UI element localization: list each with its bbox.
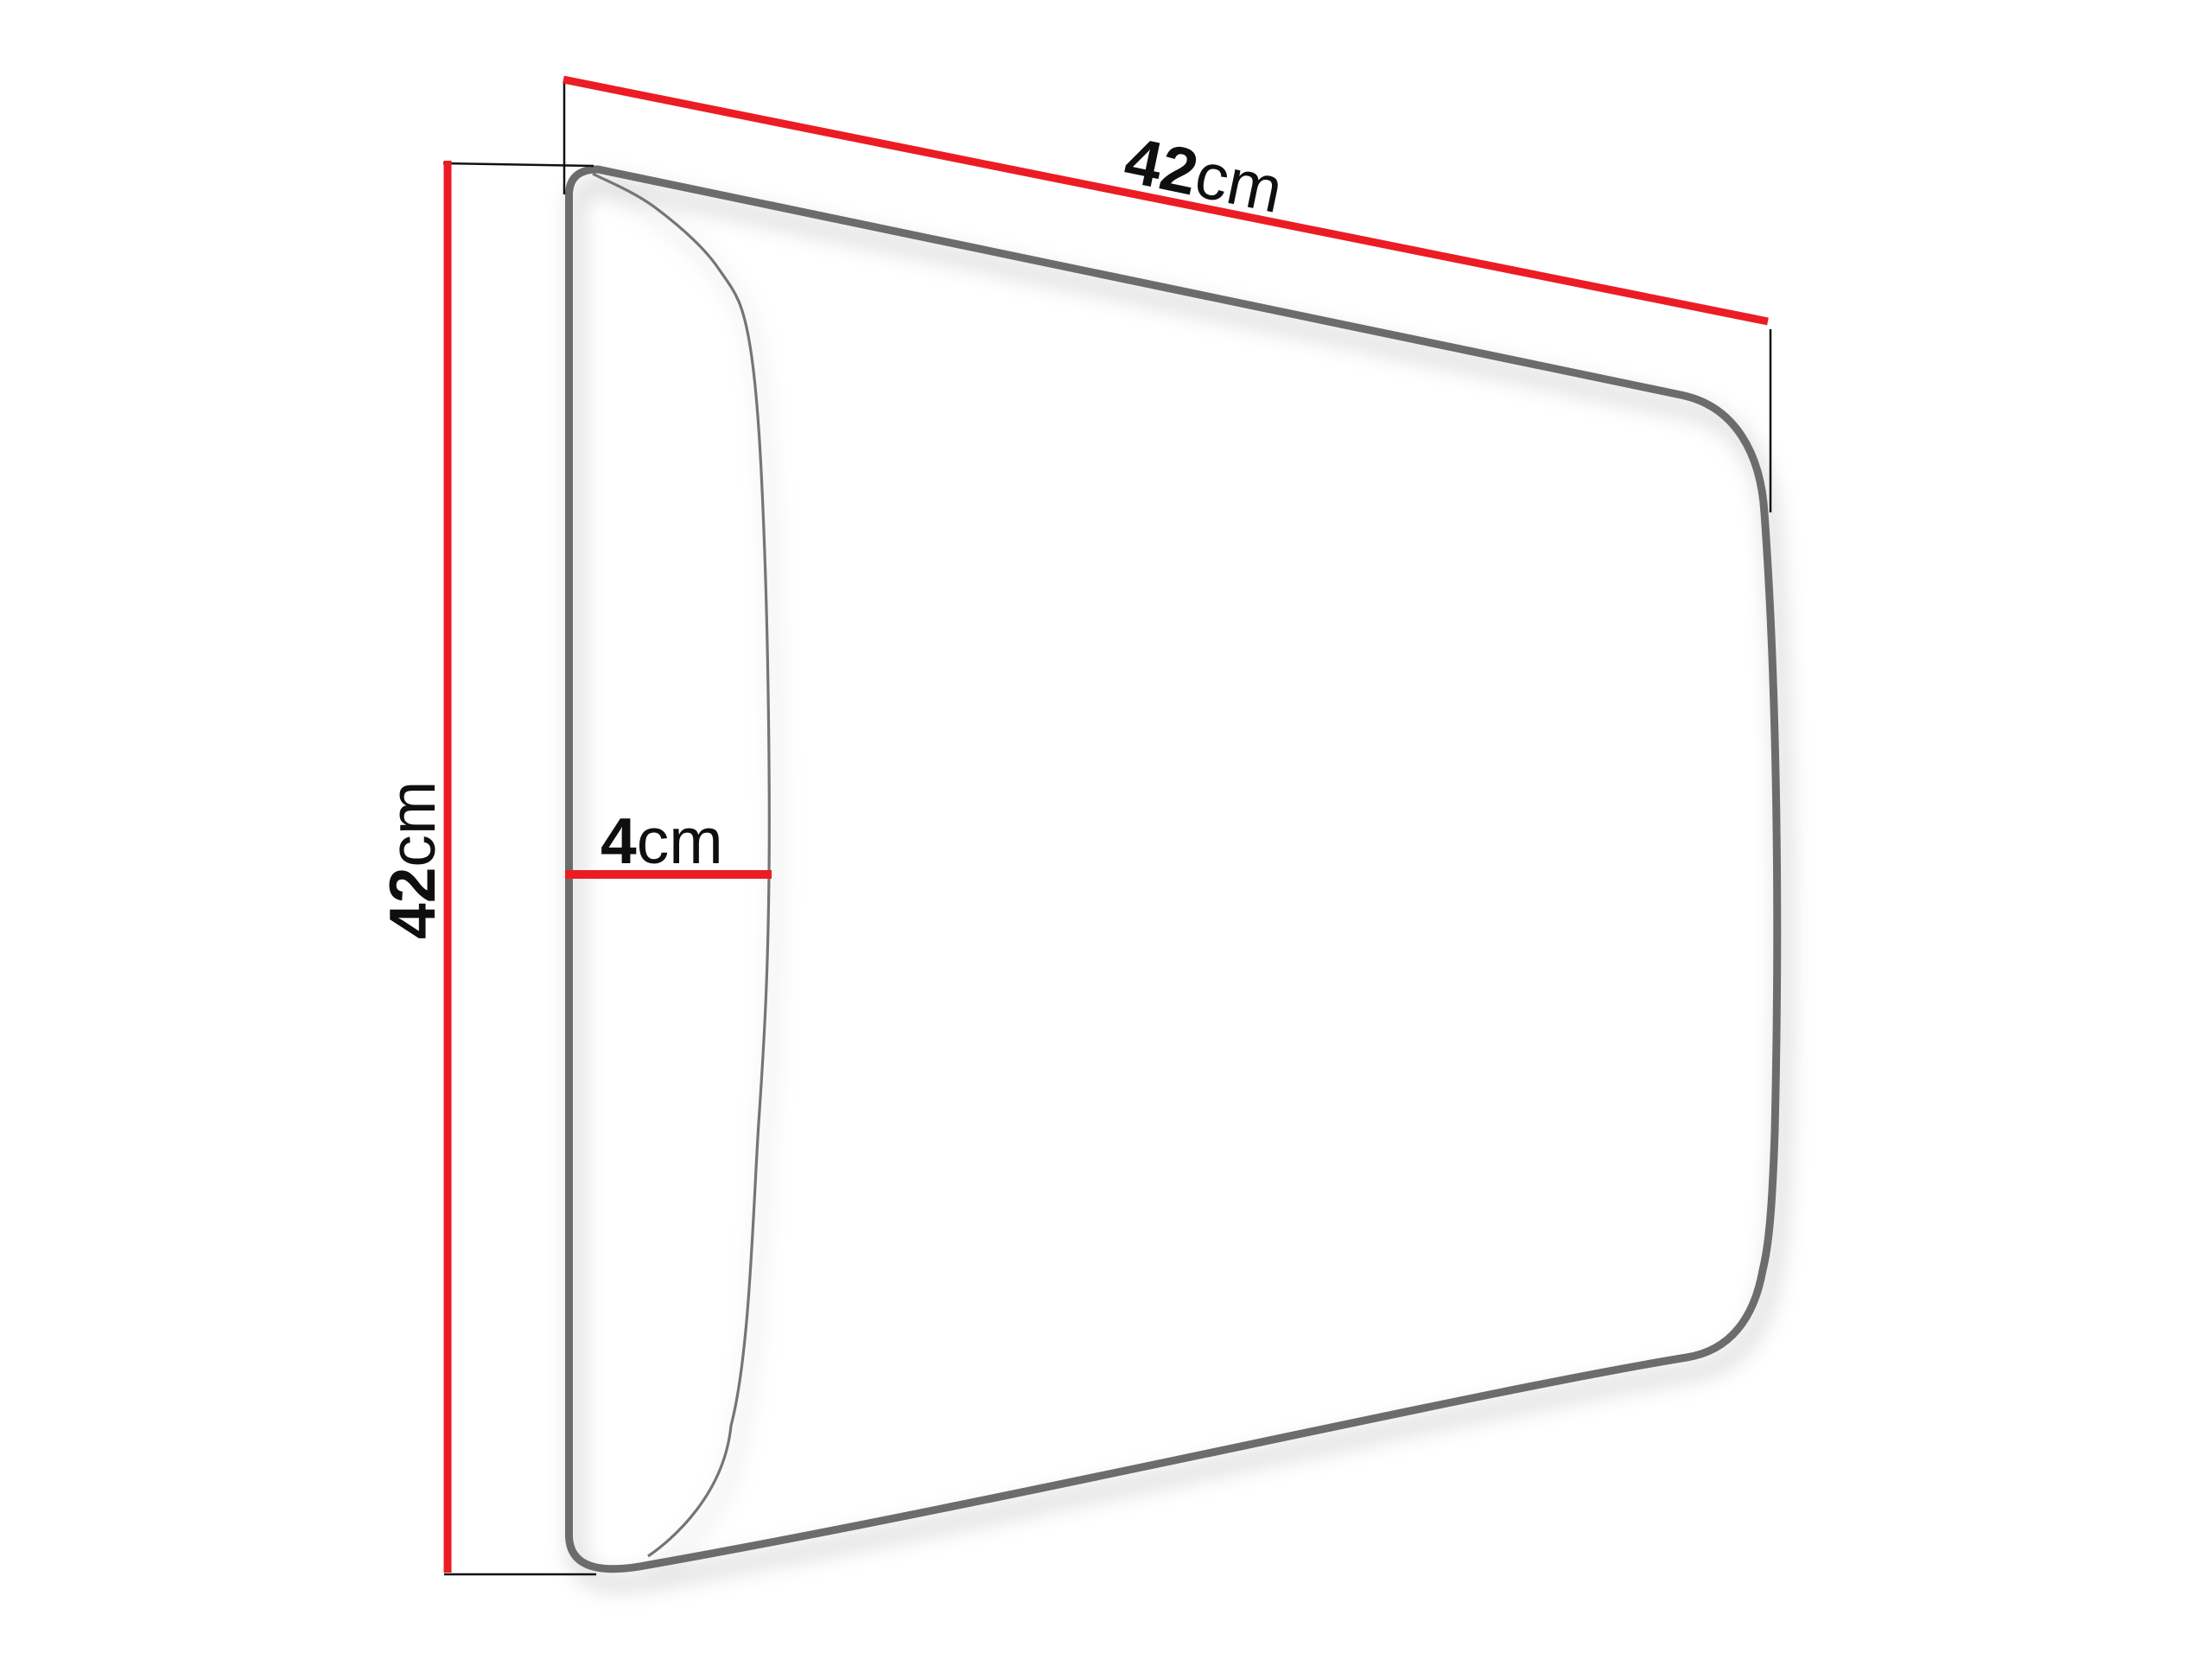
- svg-text:4cm: 4cm: [601, 804, 723, 877]
- svg-text:42cm: 42cm: [376, 781, 448, 939]
- svg-text:42cm: 42cm: [1119, 123, 1289, 226]
